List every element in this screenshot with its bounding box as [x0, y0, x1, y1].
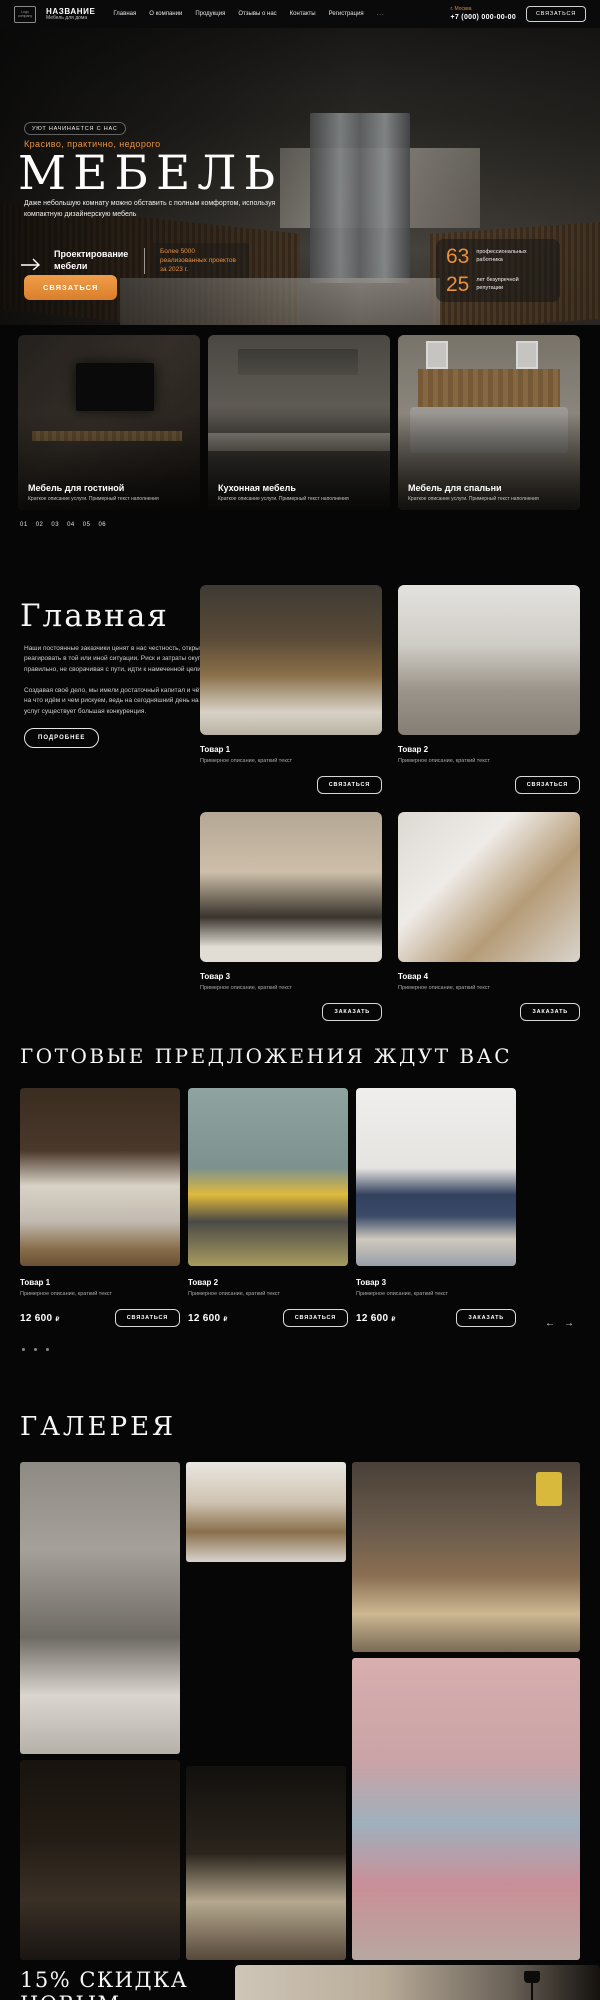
gallery-image-pastel-interior[interactable]: [352, 1658, 580, 1960]
offer-image[interactable]: [188, 1088, 348, 1266]
carousel-dot[interactable]: [34, 1348, 37, 1351]
card-subtitle: Краткое описание услуги. Примерный текст…: [408, 496, 572, 502]
gallery-image-armchair-living-room[interactable]: [352, 1462, 580, 1652]
products-grid: Товар 1 Примерное описание, краткий текс…: [200, 585, 580, 1021]
contact-block: г. Москва +7 (000) 000-00-00: [450, 6, 516, 22]
currency-symbol: ₽: [223, 1317, 227, 1323]
offer-card-1: Товар 1 Примерное описание, краткий текс…: [20, 1088, 180, 1327]
offer-bottom: 12 600 ₽ СВЯЗАТЬСЯ: [188, 1309, 348, 1327]
category-pagination: 01 02 03 04 05 06: [20, 522, 106, 528]
nav-item-products[interactable]: Продукция: [195, 11, 225, 17]
offer-name: Товар 1: [20, 1278, 180, 1287]
currency-symbol: ₽: [55, 1317, 59, 1323]
card-caption: Мебель для спальни Краткое описание услу…: [408, 483, 572, 502]
promo-image: [235, 1965, 600, 2000]
offer-bottom: 12 600 ₽ СВЯЗАТЬСЯ: [20, 1309, 180, 1327]
brand-tagline: Мебель для дома: [46, 16, 95, 22]
feature-note: Более 5000 реализованных проектов за 202…: [153, 243, 249, 278]
offer-image[interactable]: [20, 1088, 180, 1266]
hero-badge: УЮТ НАЧИНАЕТСЯ С НАС: [24, 122, 126, 135]
offers-row: Товар 1 Примерное описание, краткий текс…: [20, 1088, 516, 1327]
category-card-kitchen[interactable]: Кухонная мебель Краткое описание услуги.…: [208, 335, 390, 510]
card-subtitle: Краткое описание услуги. Примерный текст…: [28, 496, 192, 502]
page-number[interactable]: 04: [67, 522, 75, 528]
product-image[interactable]: [200, 812, 382, 962]
stat-workers: 63 профессиональных работника: [446, 246, 550, 267]
gallery-image-white-kitchen[interactable]: [186, 1462, 346, 1562]
about-title: Главная: [20, 598, 169, 634]
hero-title: МЕБЕЛЬ: [18, 146, 282, 201]
card-title: Кухонная мебель: [218, 483, 382, 493]
product-order-button[interactable]: ЗАКАЗАТЬ: [520, 1003, 580, 1021]
page-number[interactable]: 05: [83, 522, 91, 528]
offer-price: 12 600 ₽: [20, 1313, 60, 1324]
phone-number[interactable]: +7 (000) 000-00-00: [450, 13, 516, 22]
page-number[interactable]: 02: [36, 522, 44, 528]
promo-section: 15% СКИДКА НОВЫМ КЛИЕНТАМ: [0, 1965, 600, 2000]
arrow-right-icon: [20, 252, 46, 270]
nav-item-contacts[interactable]: Контакты: [290, 11, 316, 17]
stat-years: 25 лет безупречной репутации: [446, 274, 550, 295]
gallery-image-dark-living-room[interactable]: [20, 1760, 180, 1960]
offer-order-button[interactable]: ЗАКАЗАТЬ: [456, 1309, 516, 1327]
offer-contact-button[interactable]: СВЯЗАТЬСЯ: [283, 1309, 348, 1327]
brand: НАЗВАНИЕ Мебель для дома: [46, 7, 95, 22]
offer-description: Примерное описание, краткий текст: [356, 1291, 516, 1297]
offer-description: Примерное описание, краткий текст: [20, 1291, 180, 1297]
offer-bottom: 12 600 ₽ ЗАКАЗАТЬ: [356, 1309, 516, 1327]
nav-item-home[interactable]: Главная: [113, 11, 136, 17]
main-nav: Главная О компании Продукция Отзывы о на…: [113, 11, 384, 17]
next-arrow-icon[interactable]: →: [564, 1318, 574, 1329]
nav-item-register[interactable]: Регистрация: [329, 11, 364, 17]
card-caption: Мебель для гостиной Краткое описание усл…: [28, 483, 192, 502]
offers-carousel-dots: [22, 1348, 49, 1351]
product-name: Товар 1: [200, 745, 382, 754]
page: Logo company НАЗВАНИЕ Мебель для дома Гл…: [0, 0, 600, 2000]
feature-divider: [144, 248, 145, 274]
offers-carousel-arrows: ← →: [545, 1318, 574, 1329]
card-caption: Кухонная мебель Краткое описание услуги.…: [218, 483, 382, 502]
category-card-living-room[interactable]: Мебель для гостиной Краткое описание усл…: [18, 335, 200, 510]
product-description: Примерное описание, краткий текст: [398, 758, 580, 764]
hero-stats-panel: 63 профессиональных работника 25 лет без…: [436, 239, 560, 302]
stat-years-label: лет безупречной репутации: [476, 277, 538, 292]
offer-price: 12 600 ₽: [188, 1313, 228, 1324]
page-number[interactable]: 06: [98, 522, 106, 528]
offer-image[interactable]: [356, 1088, 516, 1266]
gallery-image-kitchen-island[interactable]: [186, 1766, 346, 1960]
product-description: Примерное описание, краткий текст: [200, 758, 382, 764]
category-cards: Мебель для гостиной Краткое описание усл…: [18, 335, 580, 510]
promo-title: 15% СКИДКА НОВЫМ КЛИЕНТАМ: [20, 1968, 240, 2000]
product-card-2: Товар 2 Примерное описание, краткий текс…: [398, 585, 580, 794]
product-name: Товар 3: [200, 972, 382, 981]
offers-title: ГОТОВЫЕ ПРЕДЛОЖЕНИЯ ЖДУТ ВАС: [20, 1044, 512, 1068]
stat-years-value: 25: [446, 274, 469, 295]
floor-lamp-decor: [524, 1971, 540, 2000]
product-contact-button[interactable]: СВЯЗАТЬСЯ: [317, 776, 382, 794]
offer-name: Товар 2: [188, 1278, 348, 1287]
product-card-3: Товар 3 Примерное описание, краткий текс…: [200, 812, 382, 1021]
offer-name: Товар 3: [356, 1278, 516, 1287]
nav-item-about[interactable]: О компании: [149, 11, 182, 17]
lamp-decor: [536, 1472, 562, 1506]
product-contact-button[interactable]: СВЯЗАТЬСЯ: [515, 776, 580, 794]
offer-description: Примерное описание, краткий текст: [188, 1291, 348, 1297]
price-value: 12 600: [188, 1313, 220, 1324]
gallery-image-wood-kitchen[interactable]: [186, 1568, 346, 1760]
product-image[interactable]: [398, 585, 580, 735]
product-card-4: Товар 4 Примерное описание, краткий текс…: [398, 812, 580, 1021]
stat-workers-value: 63: [446, 246, 469, 267]
offer-price: 12 600 ₽: [356, 1313, 396, 1324]
feature-title: Проектирование мебели: [54, 249, 136, 272]
hero-feature: Проектирование мебели Более 5000 реализо…: [20, 243, 249, 278]
product-description: Примерное описание, краткий текст: [200, 985, 382, 991]
header: Logo company НАЗВАНИЕ Мебель для дома Гл…: [0, 0, 600, 28]
page-number[interactable]: 03: [51, 522, 59, 528]
product-card-1: Товар 1 Примерное описание, краткий текс…: [200, 585, 382, 794]
product-image[interactable]: [200, 585, 382, 735]
product-name: Товар 4: [398, 972, 580, 981]
nav-item-reviews[interactable]: Отзывы о нас: [238, 11, 276, 17]
header-right: г. Москва +7 (000) 000-00-00 СВЯЗАТЬСЯ: [450, 6, 586, 22]
prev-arrow-icon[interactable]: ←: [545, 1318, 555, 1329]
more-button[interactable]: ПОДРОБНЕЕ: [24, 728, 99, 748]
card-title: Мебель для гостиной: [28, 483, 192, 493]
product-image[interactable]: [398, 812, 580, 962]
product-order-button[interactable]: ЗАКАЗАТЬ: [322, 1003, 382, 1021]
carousel-dot[interactable]: [46, 1348, 49, 1351]
stat-workers-label: профессиональных работника: [476, 249, 538, 264]
product-name: Товар 2: [398, 745, 580, 754]
gallery-title: ГАЛЕРЕЯ: [20, 1412, 176, 1442]
page-number[interactable]: 01: [20, 522, 28, 528]
currency-symbol: ₽: [391, 1317, 395, 1323]
offer-contact-button[interactable]: СВЯЗАТЬСЯ: [115, 1309, 180, 1327]
carousel-dot[interactable]: [22, 1348, 25, 1351]
price-value: 12 600: [20, 1313, 52, 1324]
hero-contact-button[interactable]: СВЯЗАТЬСЯ: [24, 275, 117, 300]
price-value: 12 600: [356, 1313, 388, 1324]
product-description: Примерное описание, краткий текст: [398, 985, 580, 991]
offer-card-2: Товар 2 Примерное описание, краткий текс…: [188, 1088, 348, 1327]
card-subtitle: Краткое описание услуги. Примерный текст…: [218, 496, 382, 502]
gallery-image-kitchen-gray[interactable]: [20, 1462, 180, 1754]
card-title: Мебель для спальни: [408, 483, 572, 493]
nav-overflow-icon[interactable]: ...: [377, 11, 385, 17]
offer-card-3: Товар 3 Примерное описание, краткий текс…: [356, 1088, 516, 1327]
header-contact-button[interactable]: СВЯЗАТЬСЯ: [526, 6, 586, 22]
logo[interactable]: Logo company: [14, 6, 36, 23]
hero-section: УЮТ НАЧИНАЕТСЯ С НАС Красиво, практично,…: [0, 28, 600, 325]
hero-description: Даже небольшую комнату можно обставить с…: [24, 199, 314, 221]
category-card-bedroom[interactable]: Мебель для спальни Краткое описание услу…: [398, 335, 580, 510]
